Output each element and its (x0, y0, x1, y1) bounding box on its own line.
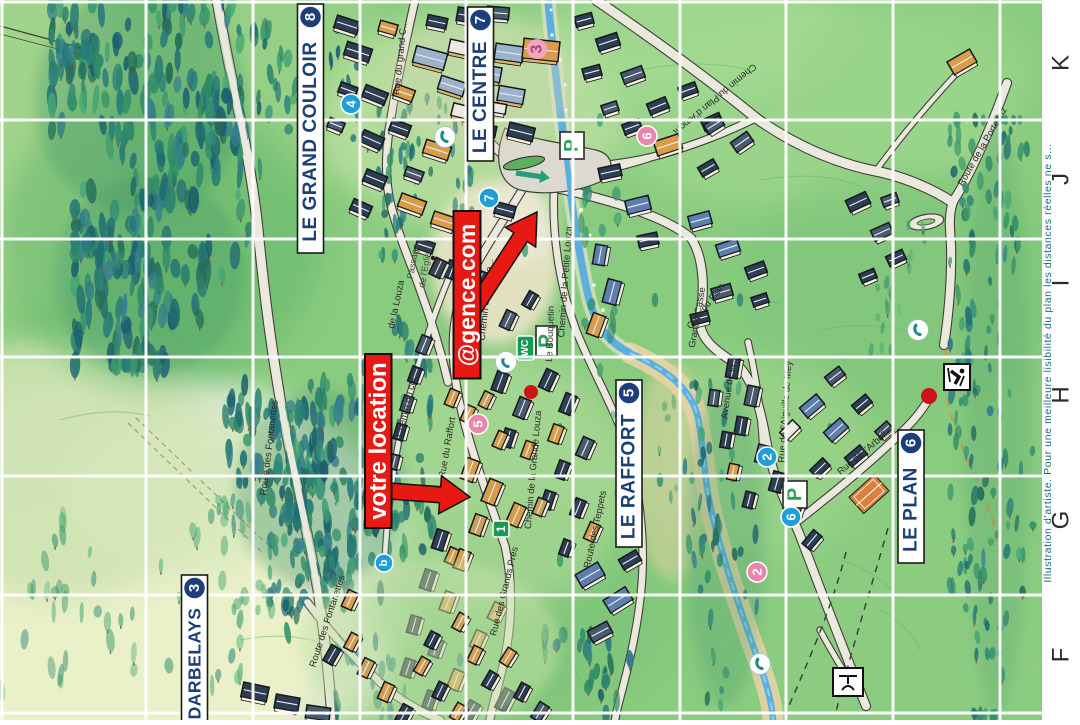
svg-text:3: 3 (186, 584, 203, 592)
svg-text:6: 6 (640, 132, 655, 139)
svg-text:G: G (1048, 511, 1075, 530)
svg-text:LE CENTRE: LE CENTRE (470, 41, 491, 153)
svg-text:1: 1 (494, 525, 508, 532)
svg-text:@gence.com: @gence.com (454, 224, 480, 367)
svg-text:LE PLAN: LE PLAN (901, 467, 922, 552)
svg-text:6: 6 (903, 439, 920, 447)
svg-text:I: I (1048, 280, 1075, 287)
svg-text:8: 8 (302, 13, 319, 21)
svg-text:LE GRAND COULOIR: LE GRAND COULOIR (300, 41, 321, 241)
svg-text:2: 2 (750, 568, 765, 575)
svg-text:J: J (1048, 173, 1075, 185)
svg-text:7: 7 (472, 16, 489, 24)
svg-text:7: 7 (482, 194, 497, 201)
svg-text:DARBELAYS: DARBELAYS (185, 608, 205, 720)
svg-text:K: K (1048, 55, 1075, 71)
svg-text:WC: WC (520, 340, 531, 357)
svg-text:votre location: votre location (365, 362, 392, 519)
svg-text:2: 2 (760, 453, 775, 460)
svg-text:5: 5 (471, 420, 486, 427)
svg-text:LE RAFFORT: LE RAFFORT (619, 414, 640, 539)
svg-text:Le Bouquetin: Le Bouquetin (544, 306, 557, 362)
svg-text:3: 3 (529, 44, 546, 53)
svg-text:b: b (378, 559, 390, 566)
svg-text:6: 6 (784, 513, 799, 520)
svg-text:H: H (1048, 386, 1075, 403)
svg-text:4: 4 (344, 100, 359, 108)
svg-text:F: F (1048, 648, 1075, 663)
svg-text:5: 5 (621, 389, 638, 397)
